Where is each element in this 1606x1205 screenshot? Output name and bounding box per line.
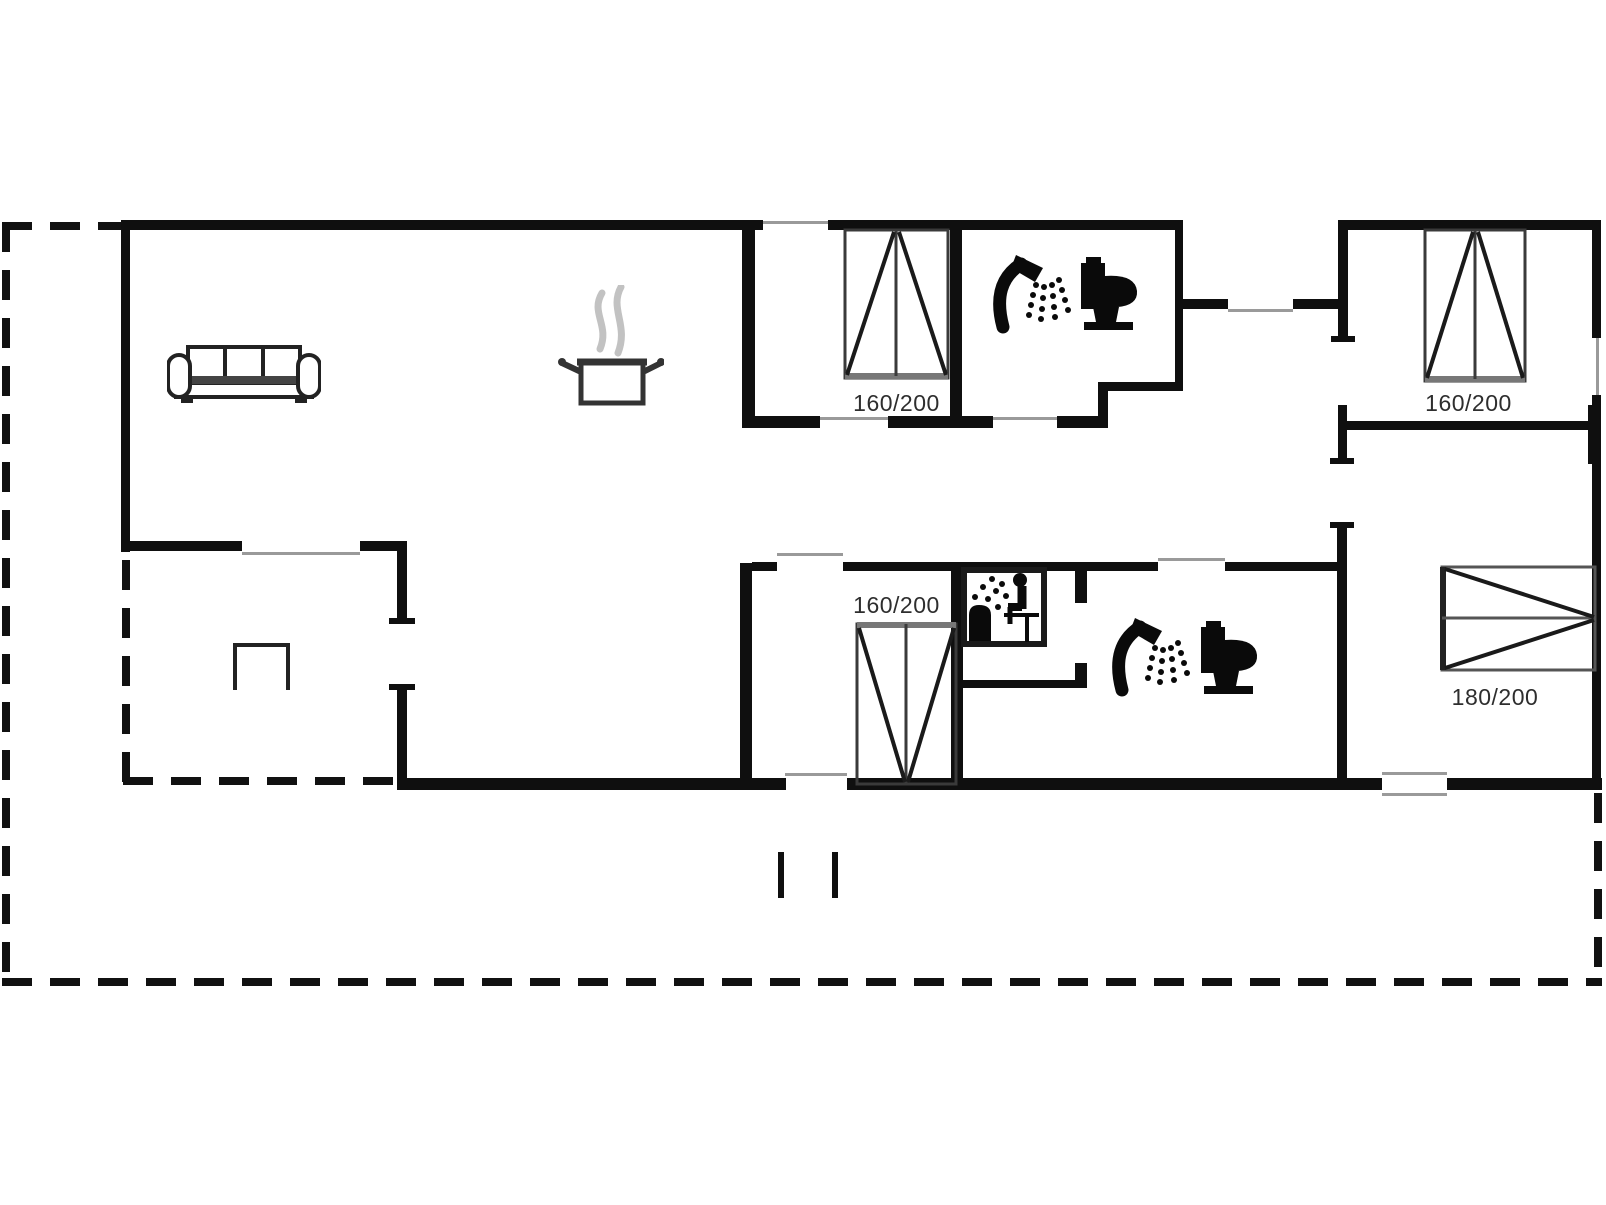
double-bed-icon <box>843 228 950 382</box>
wall-bedroom3-north-a <box>752 562 777 571</box>
porch-fixture-left <box>233 643 237 690</box>
wall-east-a <box>1592 220 1601 338</box>
bed-size-label: 180/200 <box>1440 684 1550 711</box>
wall-south-a <box>397 778 786 790</box>
terrace-dashed-right <box>1594 793 1602 986</box>
wall-sauna-south <box>963 680 1087 688</box>
wall-south-c <box>1447 778 1602 790</box>
wall-north-a <box>121 220 763 230</box>
wall-bedroom3-west <box>740 563 752 788</box>
toilet-icon <box>1076 256 1140 334</box>
wall-bedroom1-south-b <box>888 416 993 428</box>
double-bed-icon <box>1440 565 1597 672</box>
wall-bedroom1-south-a <box>742 416 820 428</box>
terrace-step-right <box>832 852 838 898</box>
wall-cap-bedroom4-b <box>1330 522 1354 528</box>
porch-dashed-south <box>123 777 398 785</box>
wall-cap-porch-a <box>389 618 415 624</box>
wall-bedroom2-west <box>1338 228 1348 338</box>
wall-bedroom4-west <box>1337 525 1347 788</box>
wall-porch-east-b <box>397 687 407 788</box>
cooking-pot-icon <box>558 285 664 407</box>
bed-size-label: 160/200 <box>1415 390 1522 417</box>
porch-fixture-top <box>233 643 290 647</box>
wall-cap-bedroom2-south-l <box>1338 405 1347 464</box>
wall-cap-bedroom2-west <box>1331 336 1355 342</box>
window-north-living <box>763 221 828 224</box>
wall-cap-porch-b <box>389 684 415 690</box>
wall-bedroom1-east <box>950 228 962 428</box>
wall-bedroom2-south <box>1338 421 1592 430</box>
floor-plan: 160/200 160/200 160/200 180/200 <box>0 0 1606 1205</box>
bed-size-label: 160/200 <box>843 592 950 619</box>
wall-cap-bedroom2-south-r <box>1588 405 1597 464</box>
door-bathroom1 <box>993 417 1057 420</box>
toilet-icon <box>1196 620 1260 698</box>
porch-fixture-right <box>286 643 290 690</box>
terrace-step-left <box>778 852 784 898</box>
wall-bedroom1-west <box>742 228 755 426</box>
bed-size-label: 160/200 <box>843 390 950 417</box>
door-porch <box>242 552 360 555</box>
wall-bathroom1-notch-h <box>1098 382 1183 391</box>
wall-bathroom1-east <box>1175 220 1183 391</box>
wall-living-south-a <box>121 541 242 551</box>
wall-entry-a <box>1183 299 1228 309</box>
wall-porch-east-a <box>397 551 407 621</box>
double-bed-icon <box>1423 228 1527 385</box>
door-bathroom2 <box>1158 558 1225 561</box>
terrace-dashed-top <box>2 222 122 230</box>
window-south-bedroom-right-b <box>1382 793 1447 796</box>
shower-icon <box>1110 616 1192 698</box>
wall-cap-bedroom4-a <box>1330 458 1354 464</box>
wall-entry-b <box>1293 299 1343 309</box>
terrace-dashed-left <box>2 222 10 986</box>
window-east <box>1596 338 1599 395</box>
wall-living-south-b <box>360 541 407 551</box>
sofa-icon <box>167 343 321 405</box>
shower-icon <box>991 253 1073 335</box>
terrace-dashed-bottom <box>2 978 1602 986</box>
wall-bathroom1-south <box>1057 416 1102 428</box>
sauna-icon <box>961 567 1047 647</box>
window-south-bedroom-right-a <box>1382 772 1447 775</box>
wall-bathroom2-north <box>1225 562 1345 571</box>
door-entry <box>1228 309 1293 312</box>
wall-west <box>121 220 130 552</box>
porch-dashed-west <box>122 560 130 788</box>
window-south-bedroom-middle <box>785 773 847 776</box>
door-bedroom1 <box>820 417 888 420</box>
double-bed-icon <box>855 622 958 786</box>
wall-sauna-stub-n <box>1075 570 1087 603</box>
door-bedroom3 <box>777 553 843 556</box>
